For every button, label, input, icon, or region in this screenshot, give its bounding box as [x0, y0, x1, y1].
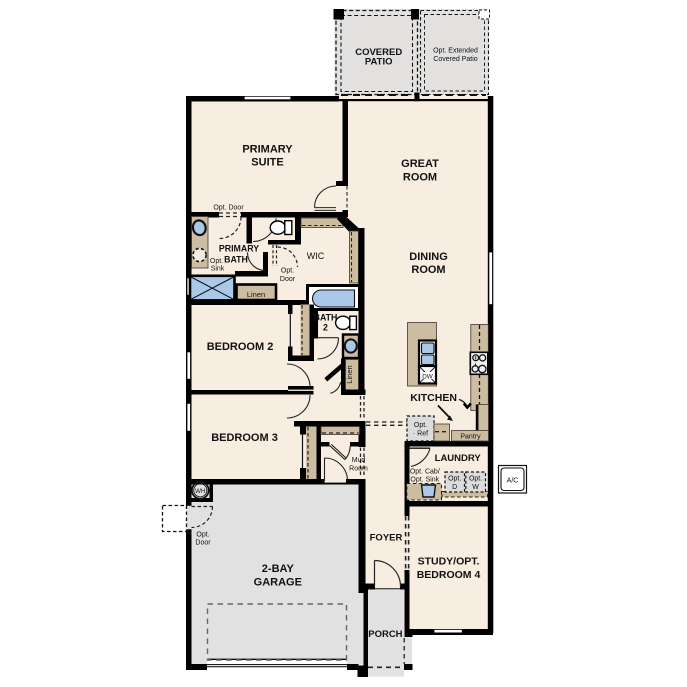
svg-text:PRIMARY: PRIMARY [242, 144, 293, 156]
svg-text:WH: WH [195, 488, 206, 495]
svg-text:Opt. Sink: Opt. Sink [410, 477, 439, 484]
svg-text:FOYER: FOYER [370, 533, 403, 544]
svg-text:GREAT: GREAT [401, 158, 439, 170]
svg-text:PATIO: PATIO [365, 57, 393, 68]
svg-text:Opt. Extended: Opt. Extended [433, 48, 478, 55]
svg-text:ROOM: ROOM [411, 264, 445, 276]
svg-text:DINING: DINING [409, 251, 448, 263]
svg-text:BEDROOM 2: BEDROOM 2 [207, 341, 274, 353]
svg-text:BATH: BATH [314, 313, 338, 323]
svg-text:WIC: WIC [307, 251, 325, 261]
svg-text:ROOM: ROOM [403, 172, 437, 184]
svg-text:Sink: Sink [211, 266, 225, 273]
svg-text:2-BAY: 2-BAY [262, 563, 295, 575]
svg-text:2: 2 [323, 323, 328, 333]
svg-text:D: D [452, 484, 457, 491]
svg-text:· Ref: · Ref [413, 431, 428, 438]
svg-text:DW: DW [422, 374, 433, 381]
svg-text:Door: Door [195, 540, 211, 547]
svg-text:BEDROOM 4: BEDROOM 4 [417, 569, 481, 581]
svg-text:Pantry: Pantry [460, 434, 481, 441]
svg-text:Linen: Linen [345, 365, 354, 383]
svg-text:Opt. Cab/: Opt. Cab/ [410, 469, 440, 476]
svg-text:Room: Room [349, 466, 368, 473]
svg-text:Opt.: Opt. [210, 258, 223, 265]
svg-text:Opt.: Opt. [469, 476, 482, 483]
svg-text:Mud: Mud [352, 457, 366, 464]
svg-text:Opt.: Opt. [414, 422, 427, 429]
svg-text:LAUNDRY: LAUNDRY [435, 453, 482, 464]
svg-text:STUDY/OPT.: STUDY/OPT. [418, 556, 480, 568]
svg-text:W: W [472, 484, 479, 491]
svg-text:PRIMARY: PRIMARY [219, 244, 259, 254]
svg-text:SUITE: SUITE [251, 157, 283, 169]
svg-text:GARAGE: GARAGE [254, 577, 302, 589]
svg-text:Opt.: Opt. [281, 268, 294, 275]
svg-text:KITCHEN: KITCHEN [410, 392, 457, 404]
svg-text:PORCH: PORCH [368, 629, 402, 640]
svg-text:Opt.: Opt. [196, 532, 209, 539]
svg-text:BATH: BATH [224, 255, 248, 265]
svg-text:Linen: Linen [247, 290, 265, 299]
svg-text:Covered Patio: Covered Patio [433, 56, 477, 63]
svg-text:BEDROOM 3: BEDROOM 3 [211, 432, 278, 444]
svg-text:A/C: A/C [507, 477, 519, 484]
svg-text:Opt. Door: Opt. Door [213, 205, 244, 212]
svg-text:Opt.: Opt. [448, 476, 461, 483]
svg-text:Door: Door [280, 276, 296, 283]
